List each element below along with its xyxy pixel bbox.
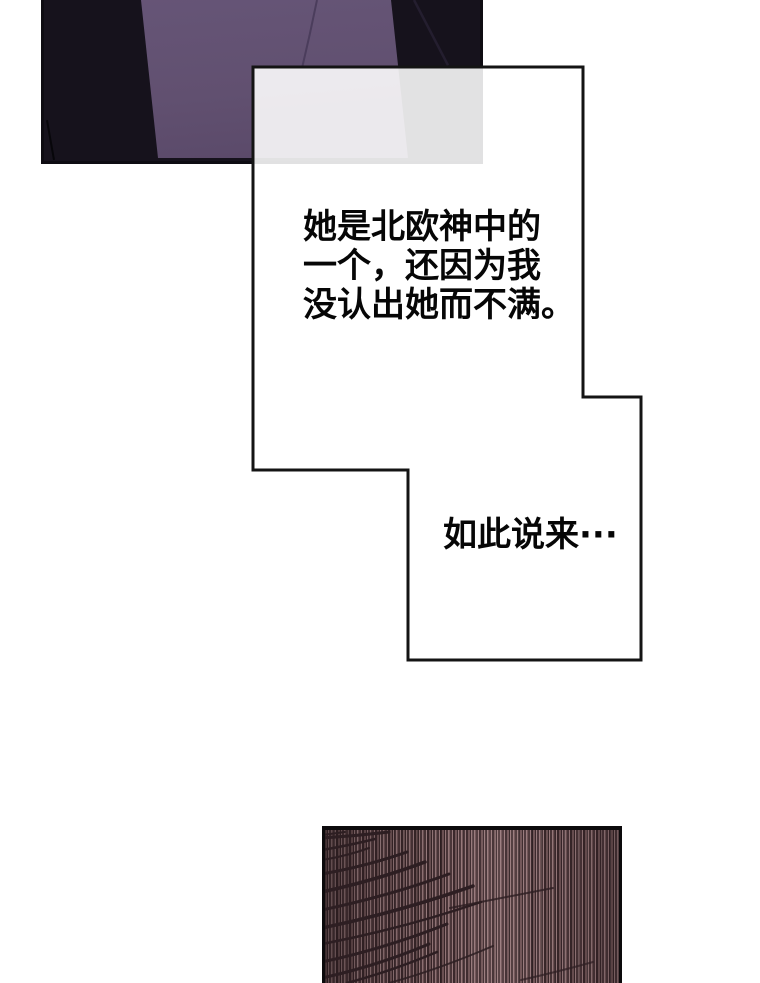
garment-fold-lines (44, 0, 480, 161)
dialogue-line-2: 一个，还因为我 (303, 247, 575, 286)
dark-crease-line (414, 0, 448, 65)
corner-fold-line (47, 120, 54, 160)
dialogue-text: 她是北欧神中的 一个，还因为我 没认出她而不满。 (303, 208, 575, 325)
top-comic-panel (41, 0, 483, 164)
dialogue-line-3: 没认出她而不满。 (303, 286, 575, 325)
aside-text: 如此说来··· (443, 516, 618, 555)
bottom-comic-panel (322, 826, 622, 983)
grass-strokes (325, 830, 619, 983)
comic-page: 她是北欧神中的 一个，还因为我 没认出她而不满。 如此说来··· (0, 0, 760, 983)
purple-fold-line (302, 0, 317, 68)
dialogue-line-1: 她是北欧神中的 (303, 208, 575, 247)
